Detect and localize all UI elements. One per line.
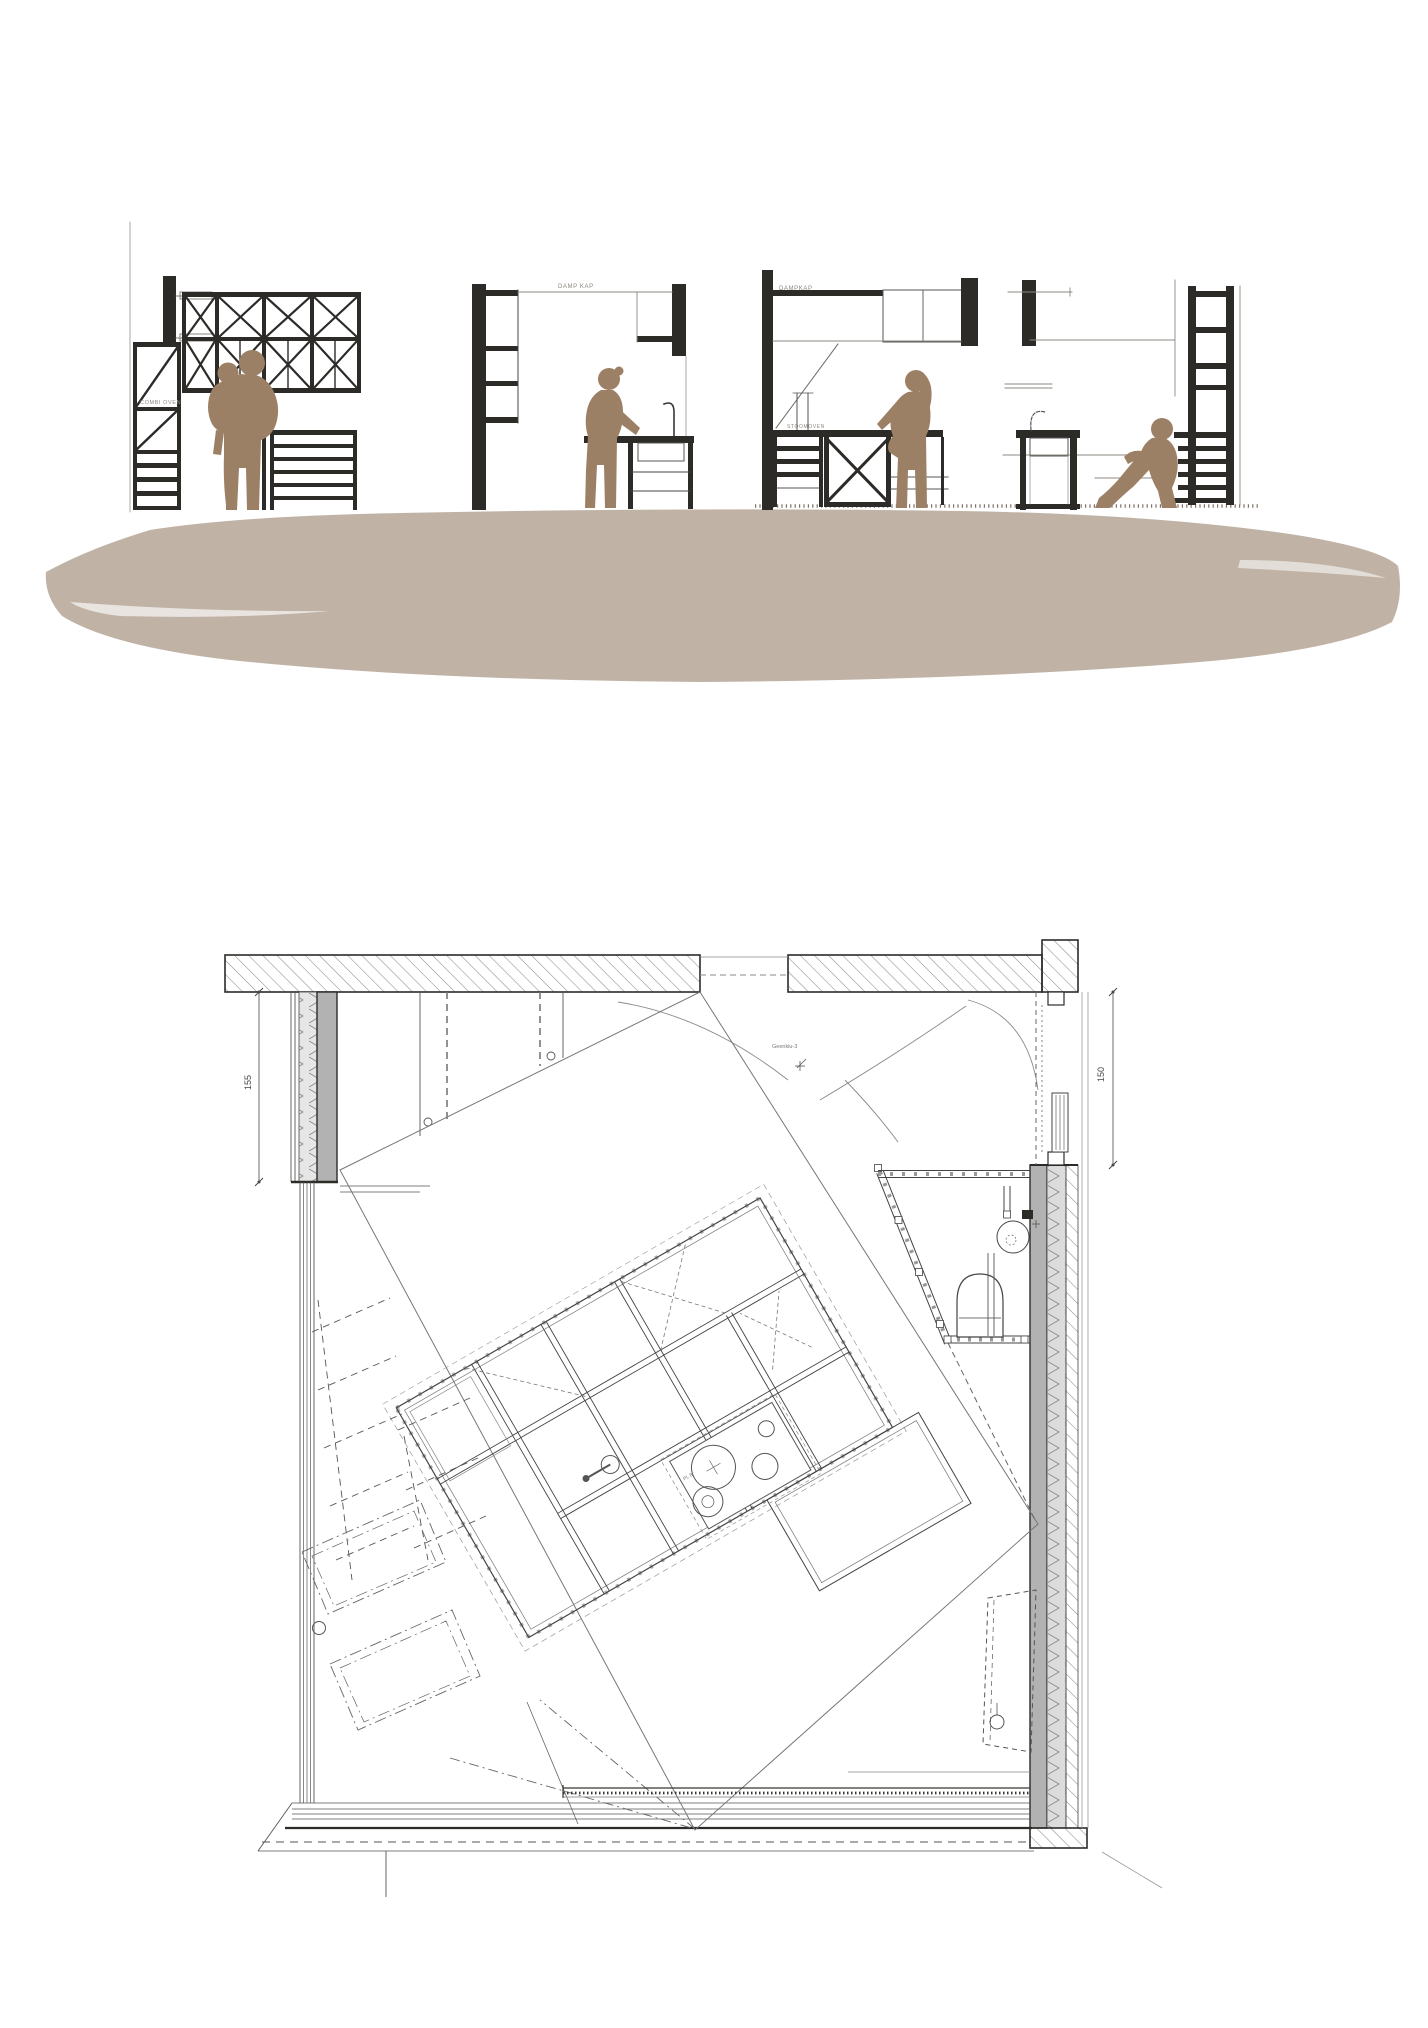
right-door xyxy=(1036,992,1068,1165)
pivot-point xyxy=(990,1715,1004,1729)
pivot-panel xyxy=(983,1590,1036,1752)
counter-leg xyxy=(941,437,944,505)
exterior-reference-line xyxy=(1102,1852,1162,1888)
hood-shelf xyxy=(637,336,672,342)
post-shelves xyxy=(486,290,518,423)
suspended-panel xyxy=(1022,280,1036,346)
bench-rail xyxy=(563,1772,1030,1798)
faucet xyxy=(1031,411,1045,430)
elevation-section-3: DAMPKAP STOOMOVEN xyxy=(762,270,978,510)
dim-left-text: 155 xyxy=(243,1075,253,1090)
slat-stack xyxy=(1174,432,1234,503)
dimension-right: 150 xyxy=(1096,988,1117,1169)
tall-post xyxy=(472,284,486,510)
dimension-left: 155 xyxy=(243,988,263,1186)
figure-pregnant-woman xyxy=(877,370,932,508)
door-jamb-top xyxy=(1048,992,1064,1005)
top-wall xyxy=(225,940,1078,992)
brush-band-shape xyxy=(46,509,1400,682)
basin-tap xyxy=(1022,1210,1033,1219)
faucet xyxy=(664,403,674,436)
window-handle xyxy=(313,1622,326,1635)
ladder-shelf-unit xyxy=(133,342,181,510)
elevation-section-2: DAMP KAP xyxy=(472,284,694,510)
drawer-stack xyxy=(270,430,357,510)
floor-plan: 155 150 xyxy=(225,940,1162,1897)
note-text: Geenklu-3 xyxy=(772,1044,797,1050)
figure-adult-with-child xyxy=(208,350,278,510)
sink-symbol xyxy=(578,1452,622,1488)
dim-right-text: 150 xyxy=(1096,1067,1106,1082)
wc-area xyxy=(944,1186,1040,1343)
combi-oven-label: COMBI OVEN xyxy=(140,400,181,406)
elevation-section-4 xyxy=(1003,280,1240,510)
wall-core xyxy=(317,992,337,1182)
corner-block xyxy=(1030,1828,1087,1848)
bottom-window-wall xyxy=(258,1803,1034,1897)
flue-panel xyxy=(163,276,176,342)
suspended-panel xyxy=(961,278,978,346)
toilet xyxy=(957,1274,1003,1337)
stoomoven-label: STOOMOVEN xyxy=(787,424,825,430)
top-shelf xyxy=(773,290,883,296)
tall-post xyxy=(762,270,773,510)
door-jamb-bottom xyxy=(1048,1152,1064,1165)
fold-line xyxy=(776,344,838,428)
drawer-unit xyxy=(773,437,823,507)
architectural-sheet: COMBI OVEN xyxy=(0,0,1428,2028)
x-braces xyxy=(186,297,357,388)
interior-projection-lines xyxy=(420,992,563,1136)
wall-core xyxy=(1030,1165,1047,1828)
wall-step xyxy=(1042,940,1078,992)
door-swing-arcs xyxy=(618,1000,1038,1142)
rotated-kitchen-core: PL 8 xyxy=(383,1174,971,1733)
insulation-layer xyxy=(299,992,317,1182)
elevation-sections: COMBI OVEN xyxy=(130,222,1240,512)
washbasin xyxy=(997,1221,1029,1253)
sink-table xyxy=(1016,411,1080,510)
damp-kap-label: DAMP KAP xyxy=(558,284,594,290)
elevation-section-1: COMBI OVEN xyxy=(130,222,361,512)
cooktop xyxy=(668,1402,811,1530)
figure-reclining-person xyxy=(1095,418,1178,508)
left-window-wall xyxy=(300,1182,430,1803)
ground-brush-band xyxy=(46,506,1400,682)
floor-tile-outlines xyxy=(302,1500,480,1730)
left-wall xyxy=(291,992,338,1182)
ladder-braces xyxy=(136,345,179,450)
plan-annotation: Geenklu-3 xyxy=(772,1044,806,1071)
drawing-canvas: COMBI OVEN xyxy=(0,0,1428,2028)
x-brace-cabinet xyxy=(824,437,891,507)
hood-post xyxy=(672,284,686,356)
insulation-layer xyxy=(1047,1165,1066,1828)
